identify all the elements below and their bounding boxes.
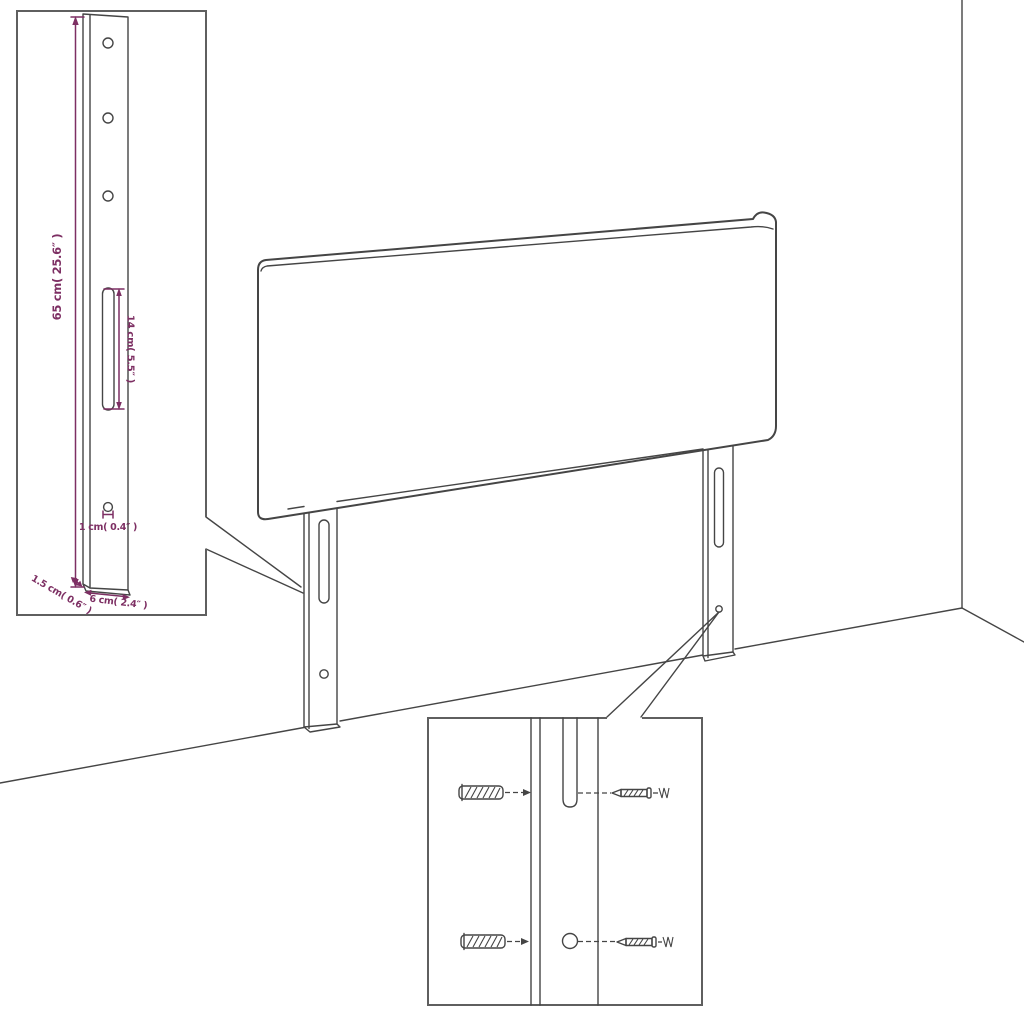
wall-plug-ribs	[467, 936, 502, 947]
diagram-canvas: 65 cm( 25.6″ ) 14 cm( 5.5″ ) 1 cm( 0.4″ …	[0, 0, 1024, 1024]
wall-plug-bottom	[461, 934, 505, 950]
fixing-inset-border	[428, 718, 702, 1005]
fixing-row-hole	[461, 934, 673, 950]
fixing-leg-slot	[563, 718, 577, 807]
screw-threads	[624, 790, 643, 796]
fixing-detail-inset	[428, 718, 702, 1005]
height-dimension-line	[71, 17, 84, 587]
fixing-leg-drawing	[531, 718, 598, 1005]
screw-top	[612, 788, 669, 798]
hole-dimension-label: 1 cm( 0.4″ )	[79, 522, 137, 533]
headboard-front-face	[258, 212, 776, 519]
floor-line-right-segment	[735, 608, 962, 649]
plug-leader-arrow-top	[523, 789, 531, 796]
fixing-leg-edges	[531, 718, 598, 1005]
fixing-leg-hole	[563, 934, 578, 949]
left-leg-callout-lines	[206, 517, 303, 593]
screw-tip	[612, 790, 621, 797]
bracket-detail-inset: 65 cm( 25.6″ ) 14 cm( 5.5″ ) 1 cm( 0.4″ …	[17, 11, 206, 617]
fixing-callout-lines	[607, 612, 719, 717]
callout-line-upper	[206, 517, 301, 587]
screw-thread-coil	[663, 937, 673, 947]
callout-line-lower	[206, 549, 303, 593]
screw-threads	[629, 939, 648, 945]
screw-head	[647, 788, 651, 798]
wall-plug-top	[459, 785, 503, 801]
wall-plug-ribs	[465, 787, 500, 798]
headboard-right-leg	[703, 443, 735, 661]
bracket-drawing	[83, 14, 130, 595]
headboard-panel	[258, 212, 776, 519]
screw-thread-coil	[659, 788, 669, 798]
dimension-bracket-height: 65 cm( 25.6″ )	[50, 16, 84, 588]
slot-dimension-label: 14 cm( 5.5″ )	[125, 315, 136, 383]
screw-bottom	[617, 937, 673, 947]
floor-line-right-wall	[962, 608, 1024, 642]
assembly-diagram: 65 cm( 25.6″ ) 14 cm( 5.5″ ) 1 cm( 0.4″ …	[0, 0, 1024, 1024]
screw-head	[652, 937, 656, 947]
plug-leader-arrow-bottom	[521, 938, 529, 945]
height-dimension-label: 65 cm( 25.6″ )	[50, 234, 64, 321]
floor-line-middle-segment	[340, 655, 703, 721]
fixing-row-slot	[459, 785, 669, 801]
headboard-left-leg	[304, 500, 340, 732]
screw-tip	[617, 939, 626, 946]
floor-line-left-segment	[0, 728, 304, 784]
callout-line-left	[607, 612, 719, 717]
width-dimension-label: 6 cm( 2.4″ )	[89, 594, 148, 612]
